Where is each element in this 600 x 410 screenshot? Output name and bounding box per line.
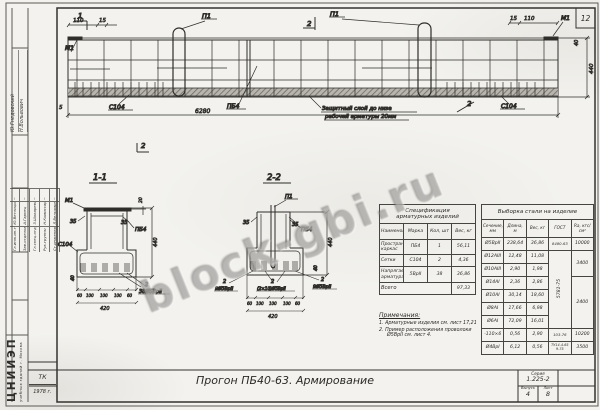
svg-text:100: 100: [269, 301, 277, 306]
drawing-title: Прогон ПБ40-63. Армирование: [60, 374, 510, 387]
svg-text:110: 110: [73, 18, 84, 24]
label-m1: М1: [65, 198, 84, 208]
svg-text:440: 440: [153, 237, 159, 247]
takeoff-title-row: Выборка стали на изделие: [482, 205, 594, 220]
dim-top-left: 110 15: [67, 18, 117, 27]
series-number: 1.225-2: [518, 376, 558, 383]
svg-text:2: 2: [145, 282, 148, 288]
svg-text:40: 40: [574, 40, 580, 46]
takeoff-table: Выборка стали на изделие Сечение, мм Дли…: [481, 204, 594, 355]
anchor-plate-m1: [84, 208, 131, 211]
series-box: Серия 1.225-2: [518, 370, 558, 383]
takeoff-col-gost: ГОСТ: [549, 220, 571, 238]
section-cut-2-top: 2: [303, 17, 315, 30]
svg-text:35: 35: [121, 220, 127, 226]
web-rebar: [261, 214, 286, 249]
callout-center: 2 (2×10)Ø5ВрII: [256, 271, 295, 291]
svg-text:2: 2: [141, 142, 146, 150]
svg-text:2: 2: [307, 20, 312, 28]
anchor-plate-m1-right: [544, 37, 558, 40]
takeoff-ra-merged-1: 3400: [571, 251, 593, 277]
spec-header-row: Наименование Марка Кол, шт Вес, кг: [380, 224, 476, 240]
takeoff-row: Ø5ВрII 238,64 36,86 8480-63 10000: [482, 238, 594, 251]
svg-text:рабочей арматуры 20мм: рабочей арматуры 20мм: [324, 114, 396, 120]
takeoff-row: Ø14АI 2,36 2,86 2400: [482, 277, 594, 290]
dim-chain: 60 100 100 100 60 420: [246, 275, 305, 320]
approver-name: Н.Вольвович: [19, 50, 28, 132]
stamp-row: Зав.отделом А.Гарнец ~: [20, 188, 30, 252]
svg-text:100: 100: [114, 293, 122, 298]
label-pb4: ПБ4: [127, 220, 147, 233]
svg-text:440: 440: [328, 237, 334, 247]
label-p1-left: П1: [181, 12, 217, 29]
protective-layer-note: Защитный слой до низа рабочей арматуры 2…: [309, 96, 417, 120]
spec-col-weight: Вес, кг: [452, 224, 476, 240]
svg-text:М1: М1: [561, 15, 570, 22]
drawing-sheet: 1 2 2 2 110 15 15 110 М1: [0, 0, 600, 410]
loop-p1-bar: [271, 205, 275, 268]
beam-body: [68, 38, 558, 97]
spec-total-row: Всего 97,33: [380, 283, 476, 295]
svg-text:35: 35: [243, 220, 249, 226]
svg-text:С104: С104: [58, 242, 73, 248]
wire-clusters: [81, 263, 129, 272]
svg-text:(2×10)Ø5ВрII: (2×10)Ø5ВрII: [257, 286, 286, 291]
approval-signatures: Ю.Гнедовский Н.Вольвович: [10, 50, 26, 132]
takeoff-col-weight: Вес, кг: [526, 220, 548, 238]
takeoff-col-ra: Rа, кгс/см²: [571, 220, 593, 238]
svg-text:1-1: 1-1: [93, 173, 107, 183]
svg-text:Защитный слой до низа: Защитный слой до низа: [322, 106, 392, 112]
takeoff-title: Выборка стали на изделие: [482, 205, 594, 220]
svg-text:6280: 6280: [195, 108, 210, 115]
label-p1-right: П1: [329, 10, 419, 25]
svg-text:ПБ4: ПБ4: [301, 227, 313, 233]
section-1-1: 1-1 М1 20 35 35 ПБ4: [57, 150, 192, 330]
beam-elevation: 1 2 2 2 110 15 15 110 М1: [57, 8, 597, 155]
notes-title: Примечания:: [379, 312, 479, 319]
sheet-number-cell: Лист 8: [538, 386, 558, 402]
svg-text:40: 40: [313, 265, 319, 271]
takeoff-col-section: Сечение, мм: [482, 220, 504, 238]
spec-title-2: арматурных изделий: [381, 214, 474, 220]
dim-440: 440: [131, 206, 159, 279]
label-m1-right: М1: [553, 15, 570, 36]
dim-40: 40: [70, 275, 76, 281]
takeoff-ra-merged-2: 2400: [571, 277, 593, 329]
label-m1-left: М1: [65, 40, 77, 52]
signature-stamp-grid: Гл.инж.ин-та Ю.Ветлицын ~ Зав.отделом А.…: [10, 188, 55, 252]
dim-35-left: 35: [243, 217, 257, 226]
svg-text:5: 5: [59, 105, 63, 111]
svg-text:2: 2: [223, 279, 226, 285]
takeoff-row: Ø12АIII 12,48 11,08 5781-75 3400: [482, 251, 594, 264]
svg-text:ПБ4: ПБ4: [135, 227, 147, 233]
tk-label: ТК: [29, 370, 56, 385]
takeoff-row: -110×6 0,56 2,90 103-76 10200: [482, 329, 594, 342]
spec-col-mark: Марка: [404, 224, 428, 240]
spec-total-label: Всего: [380, 283, 452, 295]
svg-text:110: 110: [524, 16, 535, 22]
svg-text:100: 100: [256, 301, 264, 306]
prestress-wire-zone: [68, 88, 558, 96]
svg-text:15: 15: [510, 16, 517, 22]
stamp-row: Гл.инж.ин-та Ю.Ветлицын ~: [10, 188, 20, 252]
spec-col-name: Наименование: [380, 224, 404, 240]
dim-35-left: 35: [70, 216, 85, 225]
takeoff-row: Ø4ВрI 6,12 0,56 ТУ14-4-659-75 3500: [482, 342, 594, 355]
svg-text:35: 35: [70, 219, 76, 225]
corner-sheet-number: 12: [576, 8, 595, 28]
dim-35-right: 35: [121, 217, 129, 226]
organization-sub: учебных зданий г. Москва: [18, 335, 23, 402]
dim-20: 20: [131, 197, 146, 215]
organization-name: ЦНИИЭП: [7, 335, 18, 402]
svg-text:100: 100: [86, 293, 94, 298]
spec-table: Спецификация арматурных изделий Наименов…: [379, 204, 476, 295]
notes-block: Примечания: 1. Арматурные изделия см. ли…: [379, 312, 479, 338]
dim-height-right: 440 40: [558, 36, 595, 99]
takeoff-col-length: Длина, м: [504, 220, 526, 238]
svg-text:100: 100: [283, 301, 291, 306]
svg-text:60: 60: [77, 293, 83, 298]
svg-text:40: 40: [70, 275, 76, 281]
svg-text:2: 2: [321, 277, 324, 283]
callout-right: 2 9Ø5ВрII: [295, 271, 337, 290]
dim-top-right: 15 110: [508, 16, 559, 25]
dim-440: 440: [290, 210, 334, 277]
spec-row: Сетки С104 2 4,36: [380, 255, 476, 267]
stamp-row: Рук.группы Н.Комиссарова ~: [40, 188, 50, 252]
label-c104-right: С104: [500, 96, 525, 110]
section-2-2: 2-2 П1 35 35 ПБ4 440: [205, 150, 355, 330]
section-cut-2-right: 2: [457, 100, 474, 112]
takeoff-header-row: Сечение, мм Длина, м Вес, кг ГОСТ Rа, кг…: [482, 220, 594, 238]
svg-text:20: 20: [138, 197, 144, 203]
spec-total-value: 97,33: [452, 283, 476, 295]
spec-col-qty: Кол, шт: [428, 224, 452, 240]
spec-row: Напрягаемая арматура 5ВрII 38 36,86: [380, 267, 476, 283]
issue-cell: Выпуск 4: [518, 386, 538, 402]
wire-clusters: [251, 261, 297, 270]
section-2-2-title: 2-2: [263, 173, 291, 183]
svg-text:420: 420: [100, 306, 110, 312]
svg-text:60: 60: [127, 293, 133, 298]
svg-text:60: 60: [295, 301, 301, 306]
label-c104: С104: [58, 242, 78, 252]
stamp-row: Гл.спец.отд. З.Шокарева ~: [30, 188, 40, 252]
section-1-1-title: 1-1: [89, 173, 117, 183]
spec-row: Пространственный каркас ПБ4 1 56,11: [380, 240, 476, 255]
svg-text:440: 440: [589, 63, 595, 74]
dim-chain: 60 100 100 100 60 420: [76, 277, 138, 312]
dim-overall: 6280 5: [59, 97, 560, 118]
stamp-row: Ст.инженер Л.Вельяминова ~: [50, 188, 60, 252]
svg-text:М1: М1: [65, 198, 73, 204]
svg-text:2-2: 2-2: [267, 173, 281, 183]
organization-stamp: ЦНИИЭП учебных зданий г. Москва: [7, 335, 28, 402]
year-label: 1978 г.: [29, 385, 56, 399]
approver-name: Ю.Гнедовский: [10, 50, 19, 132]
svg-text:60: 60: [247, 301, 253, 306]
svg-text:15: 15: [99, 18, 106, 24]
anchor-plate-m1-left: [68, 37, 82, 40]
svg-text:420: 420: [268, 314, 278, 320]
takeoff-gost-merged: 5781-75: [557, 279, 562, 298]
web-rebar: [91, 213, 123, 249]
label-p1: П1: [274, 194, 298, 207]
svg-text:100: 100: [100, 293, 108, 298]
spec-title-row: Спецификация арматурных изделий: [380, 205, 476, 224]
wires-callout: 2 38Ø5ВрII: [119, 273, 170, 295]
note-1: 1. Арматурные изделия см. лист 17,21: [379, 321, 479, 326]
tk-box: ТК 1978 г.: [29, 370, 56, 401]
dim-40: 40: [313, 265, 319, 271]
note-2-line2: Ø5ВрII см. лист 4.: [379, 333, 479, 338]
